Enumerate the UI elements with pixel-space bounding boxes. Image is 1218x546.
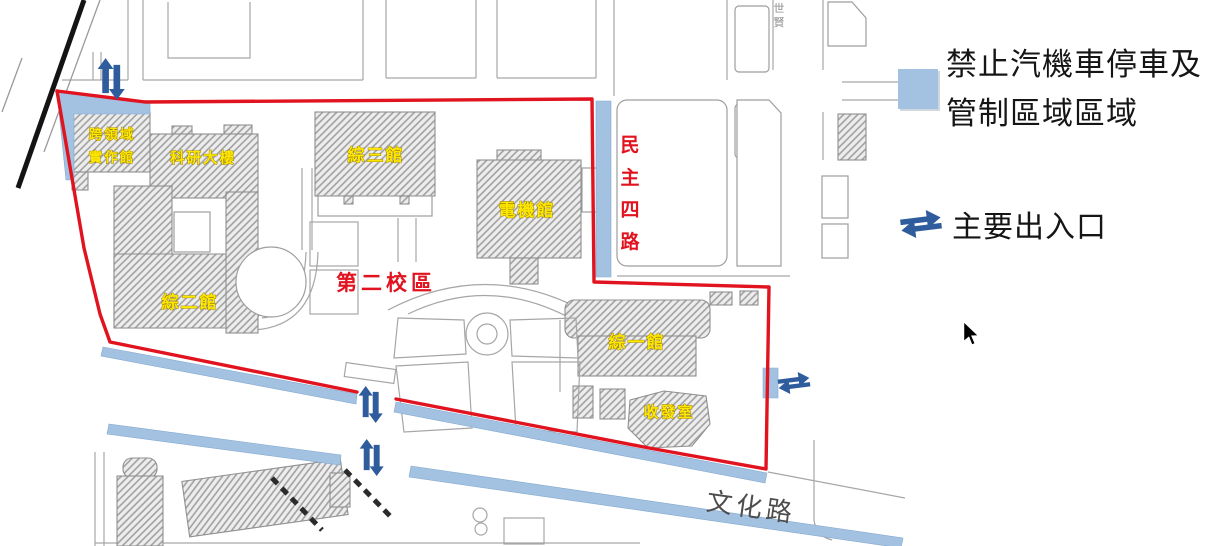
label-mail-room: 收發室 (643, 403, 694, 421)
label-interdisciplinary-line2: 實作館 (89, 149, 136, 165)
south-gate-arrows-icon (360, 439, 384, 476)
label-edge-road-char-1: 世 (774, 2, 785, 15)
campus-restricted-zone-map-page: 跨領域 實作館 科研大樓 綜三館 電機館 綜二館 綜一館 收發室 第二校區 民 … (0, 0, 1218, 546)
mouse-cursor (962, 322, 980, 346)
zone-strip-inner-road-west (101, 347, 357, 404)
label-zong1-hall: 綜一館 (609, 332, 666, 352)
zone-strip-minzhu-road (596, 101, 611, 277)
label-interdisciplinary-line1: 跨領域 (89, 126, 136, 142)
label-zong2-hall: 綜二館 (162, 292, 219, 312)
legend-no-parking-line1: 禁止汽機車停車及 (946, 40, 1202, 89)
entrance-arrows-legend-icon (898, 207, 944, 241)
label-minzhu-char-3: 四 (620, 200, 639, 221)
label-electrical-hall: 電機館 (499, 200, 556, 220)
east-gate-arrows-icon (777, 371, 811, 396)
legend-no-parking-line2: 管制區域區域 (946, 89, 1202, 138)
city-blocks (617, 2, 866, 266)
middle-gate-arrows-icon (359, 386, 383, 423)
label-campus-area: 第二校區 (336, 271, 436, 295)
zone-strip-east-gate (763, 368, 778, 398)
label-research-building: 科研大樓 (170, 149, 236, 167)
legend-entrance-item: 主要出入口 (898, 202, 1218, 246)
label-edge-road-char-2: 賢 (774, 16, 785, 29)
label-zong3-hall: 綜三館 (348, 145, 405, 165)
map-legend: 禁止汽機車停車及 管制區域區域 主要出入口 (898, 40, 1218, 246)
label-minzhu-char-1: 民 (620, 135, 639, 156)
legend-entrance-label: 主要出入口 (952, 202, 1107, 246)
restricted-zone-swatch (898, 69, 938, 109)
north-gate-arrows-icon (98, 58, 125, 100)
fountain-circle (466, 313, 508, 355)
label-minzhu-char-2: 主 (620, 167, 639, 189)
campus-map: 跨領域 實作館 科研大樓 綜三館 電機館 綜二館 綜一館 收發室 第二校區 民 … (0, 0, 905, 546)
label-minzhu-char-4: 路 (620, 230, 640, 253)
crossing-marks-2 (345, 470, 392, 518)
legend-restricted-zone-item: 禁止汽機車停車及 管制區域區域 (898, 40, 1218, 138)
label-wenhua-road: 文化路 (705, 487, 798, 528)
